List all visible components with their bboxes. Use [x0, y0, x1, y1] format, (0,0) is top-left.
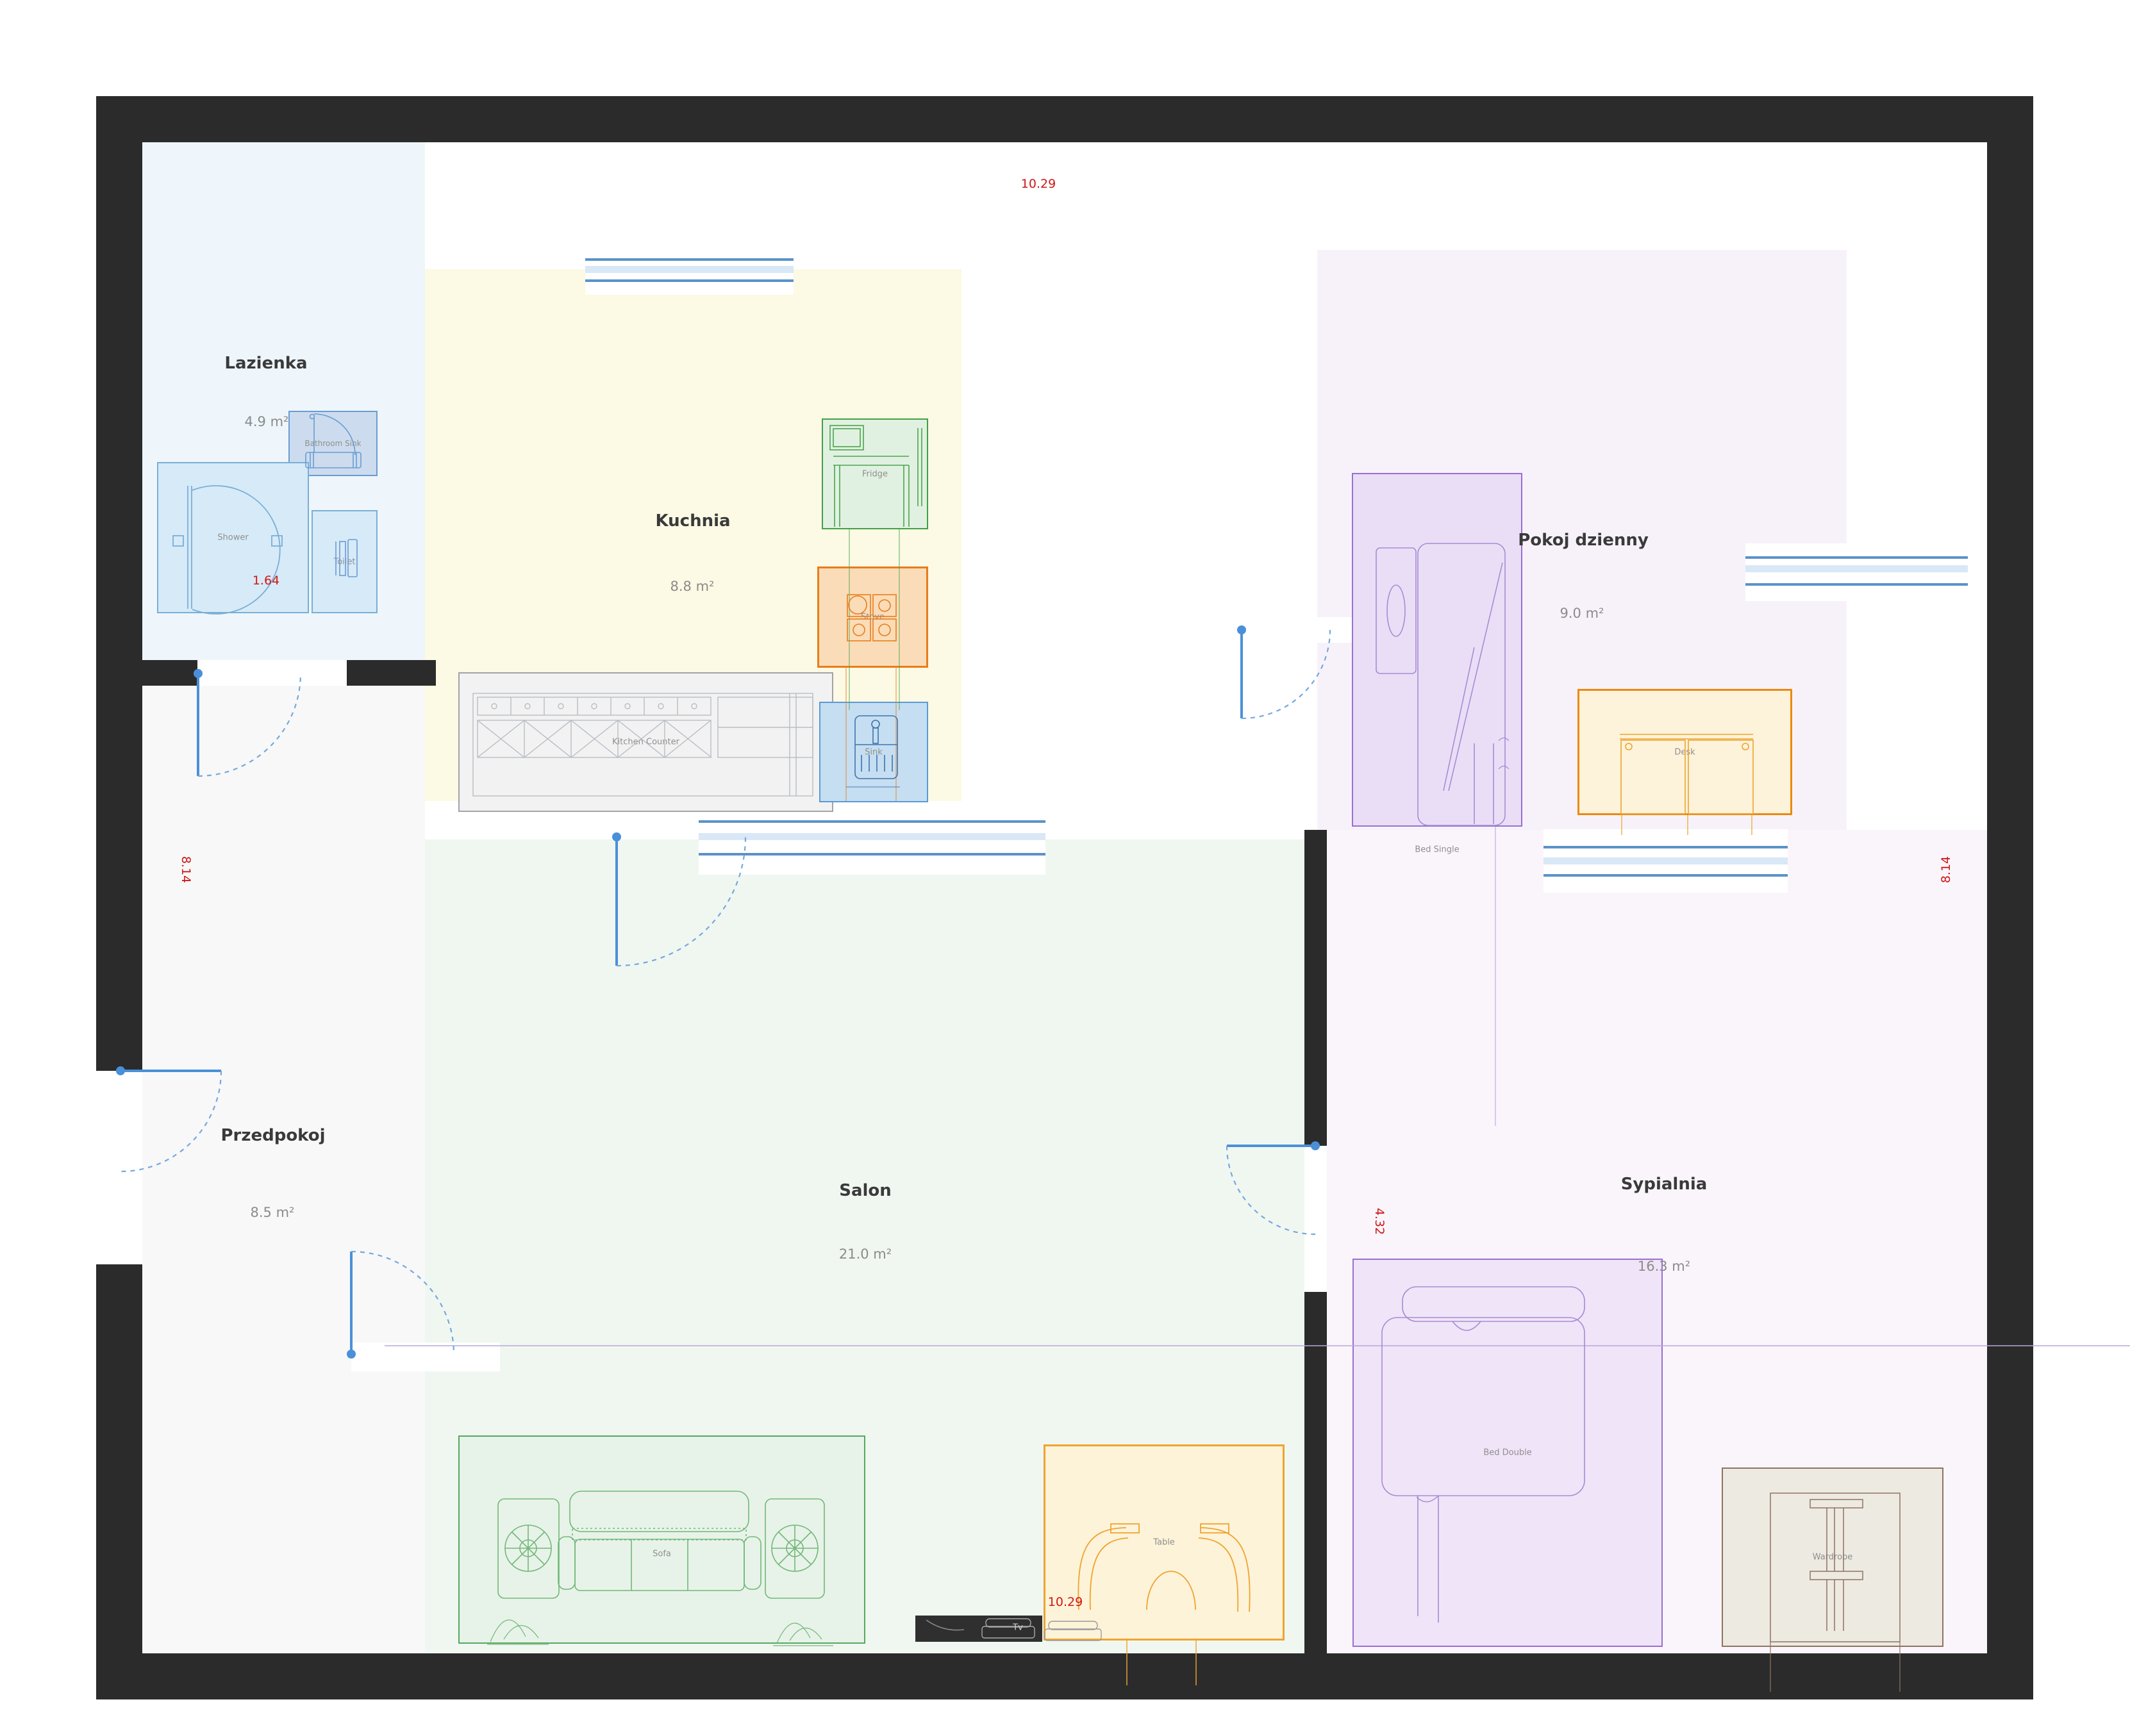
- wall-sypialnia-lower: [1304, 1292, 1327, 1653]
- sofa-label: Sofa: [653, 1549, 671, 1558]
- tv-label: Tv: [1013, 1623, 1023, 1633]
- dim-left-height: 8.14: [179, 856, 193, 883]
- furniture-tv[interactable]: [915, 1616, 1042, 1642]
- window-frame-line: [1745, 556, 1968, 559]
- furniture-bed-double[interactable]: Bed Double: [1352, 1259, 1663, 1647]
- fridge-label: Fridge: [862, 469, 888, 479]
- wall-top: [96, 96, 2033, 142]
- dim-right-height: 8.14: [1939, 856, 1953, 883]
- opening-sypialnia: [1304, 1146, 1327, 1292]
- floor-plan: Bathroom Sink Shower Toilet Fridge Stove…: [0, 0, 2130, 1736]
- room-area-lazienka: 4.9 m²: [245, 414, 289, 429]
- opening-przedpokoj-salon: [351, 1343, 500, 1371]
- room-label-lazienka: Lazienka: [224, 354, 307, 373]
- bathroom-sink-label: Bathroom Sink: [304, 439, 361, 448]
- room-area-kuchnia: 8.8 m²: [670, 579, 715, 594]
- furniture-fridge[interactable]: Fridge: [822, 418, 928, 529]
- window-pokoj-right[interactable]: [1745, 543, 1968, 601]
- wall-left-lower: [96, 1264, 142, 1653]
- room-area-pokoj-dzienny: 9.0 m²: [1560, 606, 1604, 621]
- room-label-salon: Salon: [839, 1181, 892, 1200]
- room-label-kuchnia: Kuchnia: [655, 511, 730, 531]
- window-glass: [585, 266, 794, 273]
- dim-top-width: 10.29: [1021, 177, 1056, 191]
- sink-label: Sink: [865, 747, 883, 757]
- window-kitchen-salon[interactable]: [699, 802, 1045, 875]
- shower-label: Shower: [217, 533, 248, 543]
- room-label-sypialnia: Sypialnia: [1621, 1175, 1708, 1194]
- desk-label: Desk: [1674, 747, 1695, 757]
- window-frame-line: [585, 258, 794, 261]
- window-glass: [1543, 857, 1788, 864]
- furniture-wardrobe[interactable]: Wardrobe: [1722, 1467, 1943, 1647]
- wall-right: [1987, 142, 2033, 1653]
- window-frame-line: [699, 853, 1045, 856]
- wall-bottom: [96, 1653, 2033, 1699]
- opening-entrance: [96, 1071, 142, 1264]
- kitchen-counter-label: Kitchen Counter: [612, 738, 679, 747]
- furniture-stove[interactable]: Stove: [817, 566, 928, 668]
- wall-bathroom-stub-right: [347, 660, 436, 686]
- window-glass: [1745, 565, 1968, 572]
- wall-sypialnia-upper: [1304, 830, 1327, 1146]
- furniture-shower[interactable]: Shower: [157, 462, 309, 613]
- window-frame-line: [1543, 874, 1788, 877]
- room-area-salon: 21.0 m²: [839, 1246, 892, 1262]
- wall-bathroom-stub-left: [142, 660, 197, 686]
- window-pokoj-bottom[interactable]: [1543, 829, 1788, 893]
- bed-double-label: Bed Double: [1483, 1448, 1531, 1458]
- wardrobe-label: Wardrobe: [1813, 1553, 1853, 1562]
- room-label-przedpokoj: Przedpokoj: [220, 1126, 325, 1145]
- furniture-sofa[interactable]: Sofa: [458, 1435, 865, 1644]
- bed-single-label: Bed Single: [1415, 845, 1459, 855]
- window-frame-line: [585, 279, 794, 282]
- furniture-bed-single[interactable]: [1352, 473, 1522, 827]
- wall-left-upper: [96, 142, 142, 1071]
- window-frame-line: [1745, 583, 1968, 586]
- room-label-pokoj-dzienny: Pokoj dzienny: [1518, 531, 1649, 550]
- table-label: Table: [1153, 1538, 1175, 1548]
- furniture-table[interactable]: Table: [1044, 1444, 1285, 1641]
- dim-sypialnia-height: 4.32: [1372, 1208, 1386, 1235]
- room-area-sypialnia: 16.3 m²: [1638, 1259, 1690, 1274]
- furniture-toilet[interactable]: Toilet: [312, 510, 378, 613]
- window-glass: [699, 833, 1045, 840]
- room-przedpokoj[interactable]: [142, 686, 425, 1652]
- window-frame-line: [699, 820, 1045, 823]
- toilet-label: Toilet: [333, 557, 355, 566]
- dim-shower-width: 1.64: [253, 574, 279, 588]
- dim-bottom-width: 10.29: [1048, 1595, 1083, 1609]
- window-frame-line: [1543, 846, 1788, 848]
- furniture-sink[interactable]: Sink: [819, 702, 928, 802]
- furniture-kitchen-counter[interactable]: Kitchen Counter: [458, 672, 833, 812]
- window-kitchen-top[interactable]: [585, 253, 794, 295]
- room-area-przedpokoj: 8.5 m²: [251, 1205, 295, 1220]
- stove-label: Stove: [861, 613, 885, 622]
- furniture-desk[interactable]: Desk: [1577, 689, 1792, 815]
